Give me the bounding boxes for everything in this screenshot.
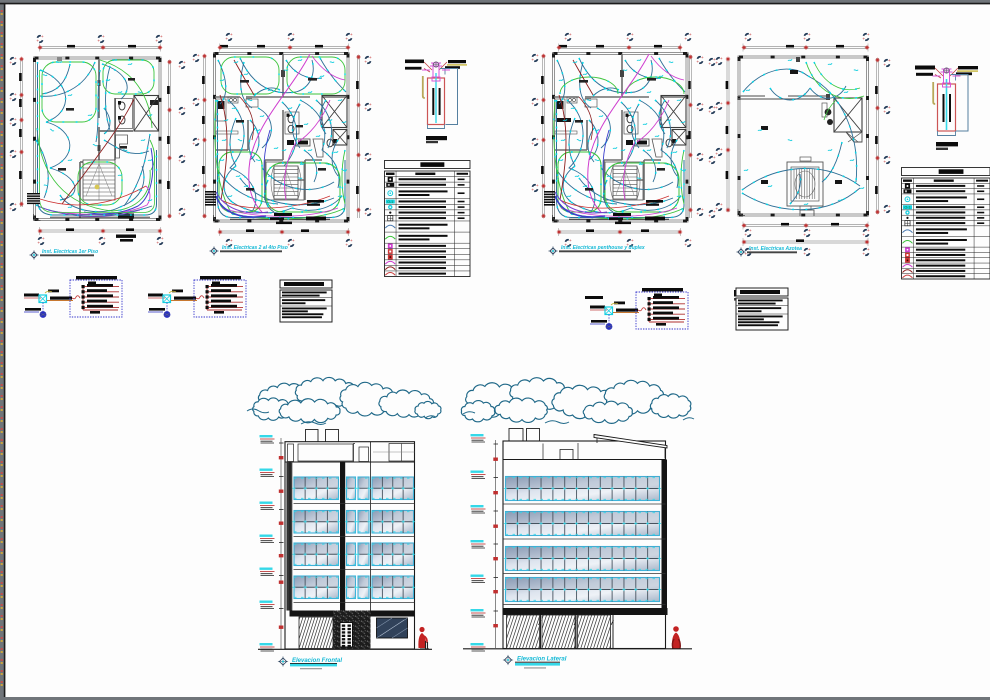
svg-text:Inst. Electricas Azotea: Inst. Electricas Azotea (749, 246, 802, 252)
svg-text:Elevacion Lateral: Elevacion Lateral (517, 657, 567, 663)
svg-text:O-1: O-1 (387, 200, 393, 204)
svg-text:Inst. Electricas 2 al 4to Piso: Inst. Electricas 2 al 4to Piso (222, 245, 288, 251)
svg-text:Inst. Electricas penthouse y d: Inst. Electricas penthouse y duplex (561, 245, 645, 251)
svg-text:O-1: O-1 (904, 206, 910, 210)
svg-text:Inst. Electricas 1er Piso: Inst. Electricas 1er Piso (42, 249, 98, 255)
